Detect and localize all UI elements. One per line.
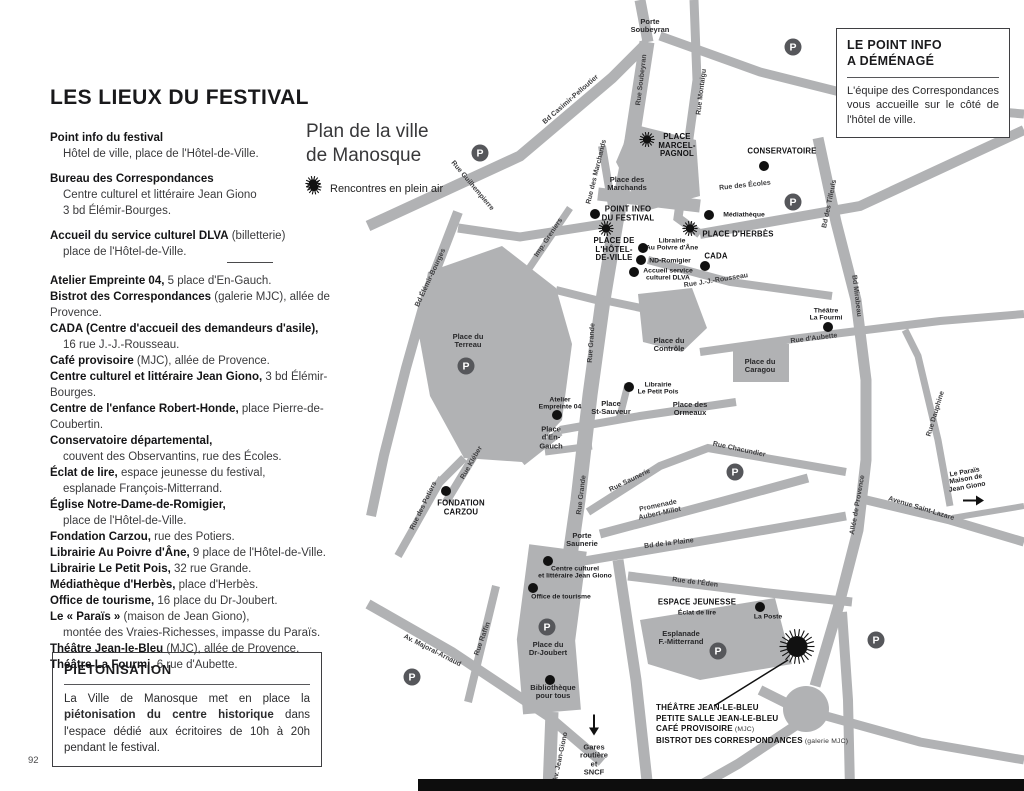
map-label: Rue Guilhempierre (449, 160, 495, 213)
map-label: Librairie Le Petit Pois (638, 382, 679, 397)
venue-dot-icon (528, 583, 538, 593)
theatre-callout-line: CAFÉ PROVISOIRE (MJC) (656, 724, 848, 736)
map-label: Place des Marchands (607, 176, 647, 193)
theatre-callout-line: PETITE SALLE JEAN-LE-BLEU (656, 714, 848, 725)
map-label: Promenade Aubert-Millot (636, 498, 681, 522)
parking-icon: P (710, 643, 727, 660)
big-sun-icon (776, 626, 818, 673)
venue-dot-icon (755, 602, 765, 612)
map-label: Place du Contrôle (654, 337, 685, 354)
map-label: Rue des Écoles (719, 179, 771, 192)
map-label: Rue Chacundier (712, 441, 766, 460)
map-label: Bd Casimir-Pelloutier (542, 74, 601, 127)
venue-dot-icon (629, 267, 639, 277)
map-label: Porte Soubeyran (631, 18, 670, 35)
map-label: Rue Kléber (459, 445, 484, 481)
theatre-callout-line: THÉÂTRE JEAN-LE-BLEU (656, 703, 848, 714)
divider (64, 684, 310, 685)
bottom-bar (418, 779, 1024, 791)
venue-dot-icon (441, 486, 451, 496)
map-label: Rue Soubeyran (635, 54, 649, 106)
venue-dot-icon (543, 556, 553, 566)
map-label: Esplanade F.-Mitterrand (659, 630, 704, 647)
pietonisation-body: La Ville de Manosque met en place la pié… (64, 691, 310, 756)
map-label: ND-Romigier (649, 257, 691, 264)
parking-icon: P (458, 358, 475, 375)
map-label: PLACE D'HERBÈS (702, 231, 773, 240)
map-label: Bd Élémir-Bourges (414, 248, 448, 309)
parking-letter: P (727, 464, 744, 481)
map-label: Place des Ormeaux (673, 401, 708, 418)
map-label: PLACE MARCEL- PAGNOL (658, 133, 695, 159)
map-label: CONSERVATOIRE (747, 148, 816, 157)
map-label: Rue des Marchands (585, 139, 608, 205)
sun-icon (597, 220, 615, 243)
map-label: Accueil service culturel DLVA (643, 268, 693, 283)
theatre-callout: THÉÂTRE JEAN-LE-BLEUPETITE SALLE JEAN-LE… (656, 703, 848, 747)
map-label: Av. Jean-Giono (552, 731, 570, 782)
map-label: Rue Saunerie (608, 468, 652, 495)
parking-icon: P (539, 619, 556, 636)
map-label: Bibliothèque pour tous (530, 684, 575, 701)
map-label: Porte Saunerie (566, 532, 598, 549)
venue-dot-icon (638, 243, 648, 253)
map-label: Rue Grande (576, 475, 588, 515)
map-label: Place d'En- Gauch (539, 426, 562, 451)
venue-dot-icon (700, 261, 710, 271)
parking-icon: P (868, 632, 885, 649)
arrow-right-icon (960, 488, 986, 519)
parking-letter: P (868, 632, 885, 649)
map-label: Office de tourisme (531, 593, 591, 600)
map-label: CADA (704, 253, 727, 262)
sun-icon (638, 131, 656, 154)
venue-dot-icon (636, 255, 646, 265)
parking-letter: P (458, 358, 475, 375)
map-label: Éclat de lire (678, 609, 716, 616)
parking-letter: P (710, 643, 727, 660)
map-label: Théâtre La Fourmi (810, 308, 843, 323)
map-label: Imp. Greniers (533, 217, 565, 259)
map-label: Rue Grande (587, 323, 597, 363)
venue-dot-icon (552, 410, 562, 420)
map-label: Rue Dauphine (925, 390, 946, 437)
map-label: Rue J.-J.-Rousseau (683, 272, 748, 290)
map-label: Allée de Provence (849, 475, 867, 536)
pietonisation-title: PIÉTONISATION (64, 662, 310, 677)
map-label: Centre culturel et littéraire Jean Giono (538, 566, 612, 581)
sun-icon (304, 175, 322, 198)
map-label: Rue d'Aubette (790, 332, 838, 345)
parking-icon: P (404, 669, 421, 686)
map-label: Bd de la Plaine (644, 537, 694, 551)
map-label: FONDATION CARZOU (437, 499, 485, 516)
map-label: Place St-Sauveur (591, 400, 631, 417)
map-label: Bd Mirabeau (850, 275, 863, 318)
venue-dot-icon (759, 161, 769, 171)
venue-dot-icon (704, 210, 714, 220)
map-label: Rue Montaigu (695, 69, 708, 116)
map-label: Av. Majoral-Arnaud (402, 633, 462, 669)
map-label: La Poste (754, 613, 782, 620)
arrow-down-icon (581, 712, 607, 743)
map-label: Gares routière et SNCF (580, 744, 608, 777)
venue-dot-icon (590, 209, 600, 219)
parking-icon: P (472, 145, 489, 162)
parking-letter: P (472, 145, 489, 162)
venue-dot-icon (545, 675, 555, 685)
guide-page: LES LIEUX DU FESTIVAL Point info du fest… (0, 0, 1024, 791)
parking-letter: P (785, 194, 802, 211)
map-label: ESPACE JEUNESSE (658, 599, 736, 608)
venue-dot-icon (624, 382, 634, 392)
map-label: Bd des Tilleuls (821, 179, 839, 229)
map-label: Médiathèque (723, 211, 765, 218)
parking-icon: P (785, 39, 802, 56)
map-label: Place du Terreau (453, 333, 484, 350)
parking-icon: P (785, 194, 802, 211)
map-label: Avenue Saint-Lazare (887, 495, 955, 522)
map-label: Rue des Potiers (409, 481, 439, 532)
map-label: Place du Caragou (745, 358, 776, 375)
parking-icon: P (727, 464, 744, 481)
venue-dot-icon (823, 322, 833, 332)
parking-letter: P (539, 619, 556, 636)
theatre-callout-line: BISTROT DES CORRESPONDANCES (galerie MJC… (656, 736, 848, 748)
pietonisation-box: PIÉTONISATION La Ville de Manosque met e… (52, 652, 322, 767)
parking-letter: P (404, 669, 421, 686)
map-label: Place du Dr-Joubert (529, 641, 567, 658)
map-label: Rue Raffin (473, 621, 492, 657)
parking-letter: P (785, 39, 802, 56)
sun-icon (681, 220, 699, 243)
page-number: 92 (28, 755, 39, 766)
map-label: Rue de l'Éden (672, 576, 719, 589)
